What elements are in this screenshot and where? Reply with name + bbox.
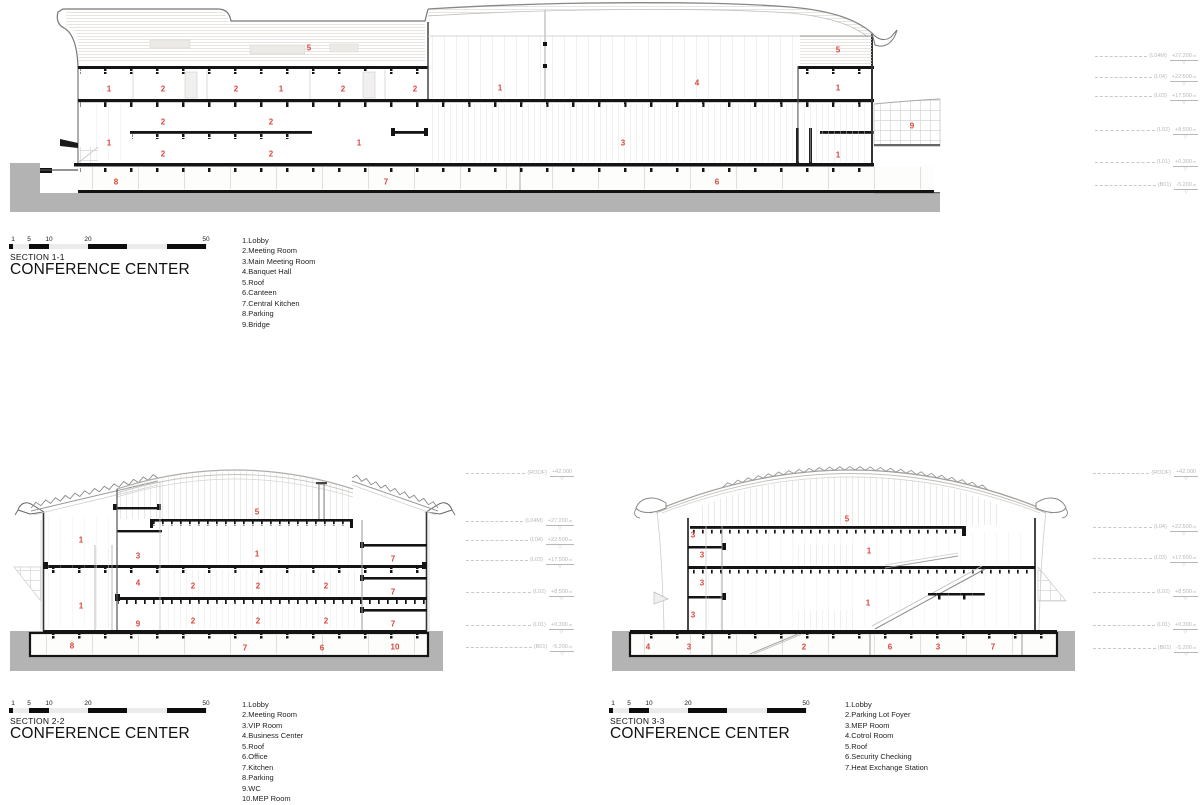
level-unit: m <box>568 537 572 542</box>
level-marker-line <box>1095 185 1156 186</box>
level-marker: (L02)+8.500 m▽ <box>1093 588 1198 602</box>
room-number-label: 2 <box>256 582 260 591</box>
level-elevation: +0.300 m▽ <box>549 621 574 635</box>
room-number-label: 3 <box>621 139 625 148</box>
level-triangle-icon: ▽ <box>549 597 574 602</box>
room-number-label: 6 <box>715 178 719 187</box>
section-title: CONFERENCE CENTER <box>610 725 790 743</box>
level-triangle-icon: ▽ <box>549 630 574 635</box>
room-number-label: 4 <box>136 579 140 588</box>
room-number-label: 4 <box>695 79 699 88</box>
room-legend: 1.Lobby2.Meeting Room3.VIP Room4.Busines… <box>242 700 303 805</box>
level-unit: m <box>568 589 572 594</box>
level-triangle-icon: ▽ <box>1170 101 1198 106</box>
level-elevation: +17.500 m▽ <box>1170 554 1198 568</box>
room-number-label: 5 <box>307 44 311 53</box>
scale-bar-segment <box>629 708 649 713</box>
level-triangle-icon: ▽ <box>1170 563 1198 568</box>
level-unit: m <box>1192 53 1196 58</box>
room-number-label: 3 <box>687 643 691 652</box>
scale-tick-label: 1 <box>611 700 615 707</box>
legend-item: 7.Heat Exchange Station <box>845 763 928 773</box>
legend-item: 9.Bridge <box>242 320 315 330</box>
level-elevation: +22.500 m▽ <box>1170 73 1198 87</box>
legend-item: 8.Parking <box>242 309 315 319</box>
scale-bar-segment <box>167 244 206 249</box>
level-marker-line <box>466 560 528 561</box>
room-number-label: 2 <box>802 643 806 652</box>
legend-item: 2.Meeting Room <box>242 710 303 720</box>
level-triangle-icon: ▽ <box>1170 532 1198 537</box>
scale-bar: 15102050 <box>9 236 219 252</box>
level-marker: (L03)+17.500 m▽ <box>466 556 574 570</box>
level-unit: m <box>1192 645 1196 650</box>
scale-bar-segment <box>688 708 727 713</box>
scale-tick-label: 20 <box>84 236 91 243</box>
room-number-label: 1 <box>836 84 840 93</box>
level-marker-line <box>466 647 532 648</box>
level-triangle-icon: ▽ <box>1174 477 1198 482</box>
level-marker: (L03)+17.500 m▽ <box>1093 554 1198 568</box>
room-legend: 1.Lobby2.Meeting Room3.Main Meeting Room… <box>242 236 315 330</box>
level-elevation: +8.500 m▽ <box>1173 126 1198 140</box>
level-marker: (L01)+0.300 m▽ <box>1093 621 1198 635</box>
room-number-label: 5 <box>836 46 840 55</box>
level-name: (L03) <box>1154 554 1167 562</box>
scale-tick-label: 10 <box>45 700 52 707</box>
scale-tick-label: 50 <box>202 236 209 243</box>
level-name: (ROOF) <box>527 469 547 477</box>
scale-bar-segment <box>88 708 127 713</box>
level-name: (L04) <box>1154 523 1167 531</box>
room-number-label: 9 <box>910 122 914 131</box>
level-marker: (L04M)+27.200 m▽ <box>1095 52 1198 66</box>
legend-item: 2.Parking Lot Foyer <box>845 710 928 720</box>
room-number-label: 1 <box>867 547 871 556</box>
level-triangle-icon: ▽ <box>1170 82 1198 87</box>
level-name: (L04M) <box>1149 52 1166 60</box>
level-name: (L02) <box>533 588 546 596</box>
room-number-label: 6 <box>320 644 324 653</box>
level-unit: m <box>568 557 572 562</box>
room-number-label: 3 <box>691 611 695 620</box>
level-name: (L01) <box>1157 621 1170 629</box>
level-marker-line <box>1095 56 1147 57</box>
room-number-label: 7 <box>991 643 995 652</box>
level-marker-line <box>1093 473 1149 474</box>
scale-bar-segment <box>167 708 206 713</box>
level-marker-line <box>466 540 528 541</box>
scale-bar: 15102050 <box>9 700 219 716</box>
scale-tick-label: 10 <box>645 700 652 707</box>
scale-tick-label: 5 <box>627 700 631 707</box>
room-number-label: 1 <box>79 602 83 611</box>
scale-bar-track <box>9 244 207 249</box>
level-unit: m <box>1192 555 1196 560</box>
level-elevation: -5.200 m▽ <box>550 643 574 657</box>
scale-tick-label: 50 <box>802 700 809 707</box>
level-triangle-icon: ▽ <box>550 652 574 657</box>
level-triangle-icon: ▽ <box>1173 630 1198 635</box>
annotations-overlay: 51221221451229113221876(L04M)+27.200 m▽(… <box>0 0 1200 796</box>
room-number-label: 7 <box>391 588 395 597</box>
room-number-label: 3 <box>136 552 140 561</box>
level-name: (ROOF) <box>1151 469 1171 477</box>
room-number-label: 4 <box>646 643 650 652</box>
legend-item: 4.Business Center <box>242 731 303 741</box>
level-marker-line <box>466 592 531 593</box>
room-number-label: 5 <box>845 515 849 524</box>
scale-bar-track <box>609 708 807 713</box>
scale-bar-segment <box>9 244 13 249</box>
room-number-label: 1 <box>107 85 111 94</box>
legend-item: 4.Banquet Hall <box>242 267 315 277</box>
room-number-label: 7 <box>391 555 395 564</box>
level-marker-line <box>1093 625 1155 626</box>
level-marker: (L01)+0.300 m▽ <box>1095 158 1198 172</box>
level-triangle-icon: ▽ <box>546 526 574 531</box>
room-number-label: 3 <box>691 531 695 540</box>
room-number-label: 1 <box>107 139 111 148</box>
room-number-label: 3 <box>936 643 940 652</box>
level-marker: (L01)+0.300 m▽ <box>466 621 574 635</box>
level-triangle-icon: ▽ <box>1170 61 1198 66</box>
level-triangle-icon: ▽ <box>1173 597 1198 602</box>
level-elevation: +22.500 m▽ <box>1170 523 1198 537</box>
level-marker: (L04M)+27.200 m▽ <box>466 517 574 531</box>
level-marker-line <box>1093 648 1156 649</box>
level-elevation: -5.200 m▽ <box>1174 644 1198 658</box>
legend-item: 5.Roof <box>242 742 303 752</box>
level-marker-line <box>466 473 525 474</box>
level-elevation: -5.200 m▽ <box>1174 181 1198 195</box>
room-number-label: 2 <box>413 85 417 94</box>
legend-item: 2.Meeting Room <box>242 246 315 256</box>
scale-bar-segment <box>29 244 49 249</box>
level-elevation: +42.000▽ <box>550 469 574 482</box>
level-marker: (L04)+22.500 m▽ <box>466 536 574 550</box>
level-name: (L02) <box>1157 588 1170 596</box>
room-number-label: 2 <box>161 85 165 94</box>
level-name: (L01) <box>1157 158 1170 166</box>
level-marker-line <box>1095 96 1152 97</box>
legend-item: 6.Security Checking <box>845 752 928 762</box>
room-number-label: 2 <box>269 150 273 159</box>
level-elevation: +42.000▽ <box>1174 469 1198 482</box>
scale-bar-segment <box>88 244 127 249</box>
level-elevation: +8.500 m▽ <box>549 588 574 602</box>
level-marker-line <box>1095 162 1155 163</box>
level-marker: (L02)+8.500 m▽ <box>466 588 574 602</box>
room-number-label: 5 <box>255 508 259 517</box>
room-number-label: 7 <box>384 178 388 187</box>
level-elevation: +17.500 m▽ <box>546 556 574 570</box>
level-name: (B01) <box>534 643 547 651</box>
legend-item: 1.Lobby <box>845 700 928 710</box>
section-title: CONFERENCE CENTER <box>10 725 190 743</box>
legend-item: 9.WC <box>242 784 303 794</box>
scale-tick-label: 5 <box>27 700 31 707</box>
scale-bar-segment <box>609 708 613 713</box>
scale-bar: 15102050 <box>609 700 819 716</box>
room-number-label: 7 <box>243 644 247 653</box>
section-title: CONFERENCE CENTER <box>10 261 190 279</box>
legend-item: 6.Canteen <box>242 288 315 298</box>
level-marker-line <box>1095 130 1155 131</box>
room-legend: 1.Lobby2.Parking Lot Foyer3.MEP Room4.Co… <box>845 700 928 773</box>
legend-item: 1.Lobby <box>242 700 303 710</box>
level-unit: m <box>568 644 572 649</box>
legend-item: 3.MEP Room <box>845 721 928 731</box>
scale-tick-label: 10 <box>45 236 52 243</box>
level-marker: (L04)+22.500 m▽ <box>1095 73 1198 87</box>
legend-item: 1.Lobby <box>242 236 315 246</box>
room-number-label: 2 <box>161 150 165 159</box>
room-number-label: 2 <box>324 582 328 591</box>
level-elevation: +17.500 m▽ <box>1170 92 1198 106</box>
level-name: (L03) <box>530 556 543 564</box>
level-name: (B01) <box>1158 644 1171 652</box>
room-number-label: 7 <box>391 620 395 629</box>
level-marker-line <box>466 625 531 626</box>
level-marker: (ROOF)+42.000▽ <box>466 469 574 482</box>
level-marker-line <box>1093 592 1155 593</box>
level-unit: m <box>1192 159 1196 164</box>
legend-item: 4.Cotrol Room <box>845 731 928 741</box>
legend-item: 7.Kitchen <box>242 763 303 773</box>
legend-item: 5.Roof <box>845 742 928 752</box>
scale-bar-segment <box>767 708 806 713</box>
room-number-label: 2 <box>191 582 195 591</box>
level-unit: m <box>568 518 572 523</box>
level-unit: m <box>1192 93 1196 98</box>
level-marker: (ROOF)+42.000▽ <box>1093 469 1198 482</box>
room-number-label: 1 <box>79 536 83 545</box>
room-number-label: 10 <box>391 643 400 652</box>
level-marker: (L04)+22.500 m▽ <box>1093 523 1198 537</box>
room-number-label: 2 <box>324 617 328 626</box>
level-name: (L04M) <box>525 517 542 525</box>
level-name: (B01) <box>1158 181 1171 189</box>
room-number-label: 1 <box>255 550 259 559</box>
scale-tick-label: 5 <box>27 236 31 243</box>
level-marker: (B01)-5.200 m▽ <box>466 643 574 657</box>
level-triangle-icon: ▽ <box>1173 167 1198 172</box>
legend-item: 7.Central Kitchen <box>242 299 315 309</box>
level-elevation: +27.200 m▽ <box>546 517 574 531</box>
scale-bar-segment <box>9 708 13 713</box>
level-triangle-icon: ▽ <box>1173 135 1198 140</box>
room-number-label: 2 <box>161 118 165 127</box>
room-number-label: 1 <box>836 151 840 160</box>
level-triangle-icon: ▽ <box>546 545 574 550</box>
room-number-label: 1 <box>498 84 502 93</box>
scale-tick-label: 50 <box>202 700 209 707</box>
room-number-label: 2 <box>269 118 273 127</box>
scale-bar-segment <box>29 708 49 713</box>
room-number-label: 6 <box>888 643 892 652</box>
room-number-label: 2 <box>341 85 345 94</box>
room-number-label: 2 <box>256 617 260 626</box>
room-number-label: 8 <box>70 642 74 651</box>
level-elevation: +0.300 m▽ <box>1173 158 1198 172</box>
level-elevation: +0.300 m▽ <box>1173 621 1198 635</box>
level-name: (L02) <box>1157 126 1170 134</box>
legend-item: 5.Roof <box>242 278 315 288</box>
level-elevation: +8.500 m▽ <box>1173 588 1198 602</box>
level-elevation: +22.500 m▽ <box>546 536 574 550</box>
scale-tick-label: 20 <box>84 700 91 707</box>
scale-tick-label: 1 <box>11 700 15 707</box>
level-unit: m <box>1192 524 1196 529</box>
level-marker: (B01)-5.200 m▽ <box>1093 644 1198 658</box>
level-name: (L04) <box>530 536 543 544</box>
level-marker-line <box>1093 558 1152 559</box>
level-unit: m <box>1192 74 1196 79</box>
level-marker-line <box>466 521 523 522</box>
level-name: (L04) <box>1154 73 1167 81</box>
scale-tick-label: 1 <box>11 236 15 243</box>
legend-item: 8.Parking <box>242 773 303 783</box>
level-triangle-icon: ▽ <box>1174 653 1198 658</box>
level-marker-line <box>1095 77 1152 78</box>
level-elevation: +27.200 m▽ <box>1170 52 1198 66</box>
room-number-label: 3 <box>700 579 704 588</box>
level-marker: (L03)+17.500 m▽ <box>1095 92 1198 106</box>
level-unit: m <box>1192 182 1196 187</box>
level-name: (L03) <box>1154 92 1167 100</box>
level-name: (L01) <box>533 621 546 629</box>
level-marker: (B01)-5.200 m▽ <box>1095 181 1198 195</box>
level-triangle-icon: ▽ <box>546 565 574 570</box>
level-triangle-icon: ▽ <box>1174 190 1198 195</box>
drawing-sheet: 51221221451229113221876(L04M)+27.200 m▽(… <box>0 0 1200 796</box>
scale-bar-track <box>9 708 207 713</box>
room-number-label: 8 <box>114 178 118 187</box>
room-number-label: 2 <box>234 85 238 94</box>
level-triangle-icon: ▽ <box>550 477 574 482</box>
scale-tick-label: 20 <box>684 700 691 707</box>
room-number-label: 1 <box>866 599 870 608</box>
level-unit: m <box>1192 127 1196 132</box>
room-number-label: 1 <box>279 85 283 94</box>
room-number-label: 1 <box>357 139 361 148</box>
room-number-label: 9 <box>136 620 140 629</box>
level-unit: m <box>1192 622 1196 627</box>
level-unit: m <box>1192 589 1196 594</box>
legend-item: 3.VIP Room <box>242 721 303 731</box>
level-marker-line <box>1093 527 1152 528</box>
legend-item: 6.Office <box>242 752 303 762</box>
room-number-label: 3 <box>700 551 704 560</box>
room-number-label: 2 <box>191 617 195 626</box>
level-marker: (L02)+8.500 m▽ <box>1095 126 1198 140</box>
legend-item: 3.Main Meeting Room <box>242 257 315 267</box>
level-unit: m <box>568 622 572 627</box>
